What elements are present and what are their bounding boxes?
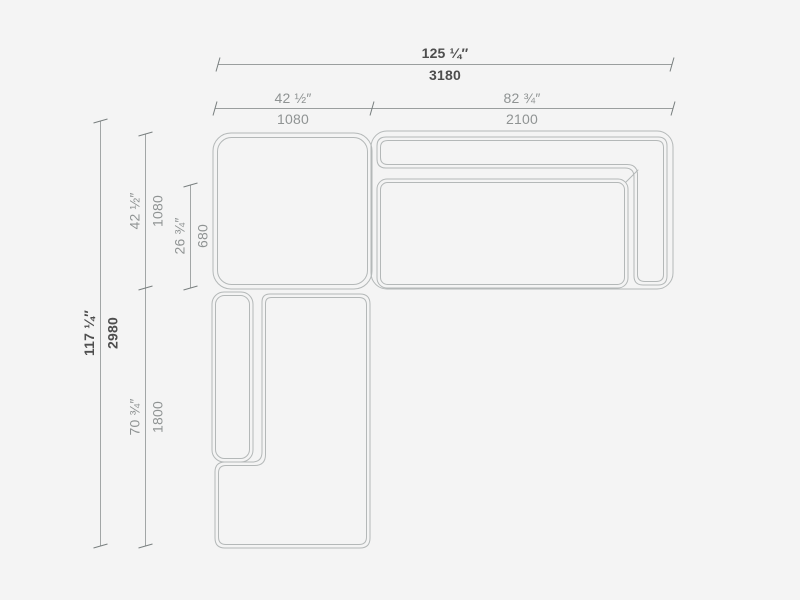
dimension-labels: 125 ¼″ 3180 42 ½″ 1080 82 ¾″ 2100 117 ¼″… — [81, 45, 541, 436]
backrest-armrest-inner-outline — [381, 141, 664, 282]
overall-depth-inches-label: 117 ¼″ — [81, 310, 97, 356]
chaise-seat-outline — [215, 294, 370, 548]
left-module-width-mm-label: 1080 — [277, 111, 309, 127]
sofa-dimension-diagram: 125 ¼″ 3180 42 ½″ 1080 82 ¾″ 2100 117 ¼″… — [0, 0, 800, 600]
overall-width-mm-label: 3180 — [429, 67, 461, 83]
chaise-armrest-outline — [212, 292, 253, 462]
chaise-depth-mm-label: 1800 — [150, 401, 166, 433]
overall-depth-mm-label: 2980 — [105, 317, 121, 349]
corner-module — [213, 133, 372, 289]
sofa-drawing — [212, 131, 673, 548]
corner-crease-line — [626, 170, 638, 182]
seat-depth-inches-label: 26 ¾″ — [172, 217, 188, 254]
corner-module-inner-outline — [218, 138, 368, 285]
seat-cushion-inner-outline — [381, 183, 625, 285]
corner-depth-mm-label: 1080 — [150, 195, 166, 227]
overall-width-inches-label: 125 ¼″ — [422, 45, 469, 61]
chaise-armrest-inner-outline — [216, 296, 250, 459]
backrest-armrest-outline — [377, 137, 667, 285]
right-module-width-mm-label: 2100 — [506, 111, 538, 127]
seat-depth-mm-label: 680 — [195, 224, 211, 248]
chaise-module — [212, 292, 370, 548]
technical-drawing-canvas: 125 ¼″ 3180 42 ½″ 1080 82 ¾″ 2100 117 ¼″… — [0, 0, 800, 600]
corner-depth-inches-label: 42 ½″ — [127, 192, 143, 229]
chaise-seat-inner-outline — [219, 298, 367, 545]
sofa-module — [371, 131, 673, 289]
right-module-width-inches-label: 82 ¾″ — [503, 90, 540, 106]
corner-module-outline — [213, 133, 372, 289]
seat-cushion-outline — [377, 179, 628, 288]
chaise-depth-inches-label: 70 ¾″ — [127, 398, 143, 435]
left-module-width-inches-label: 42 ½″ — [274, 90, 311, 106]
